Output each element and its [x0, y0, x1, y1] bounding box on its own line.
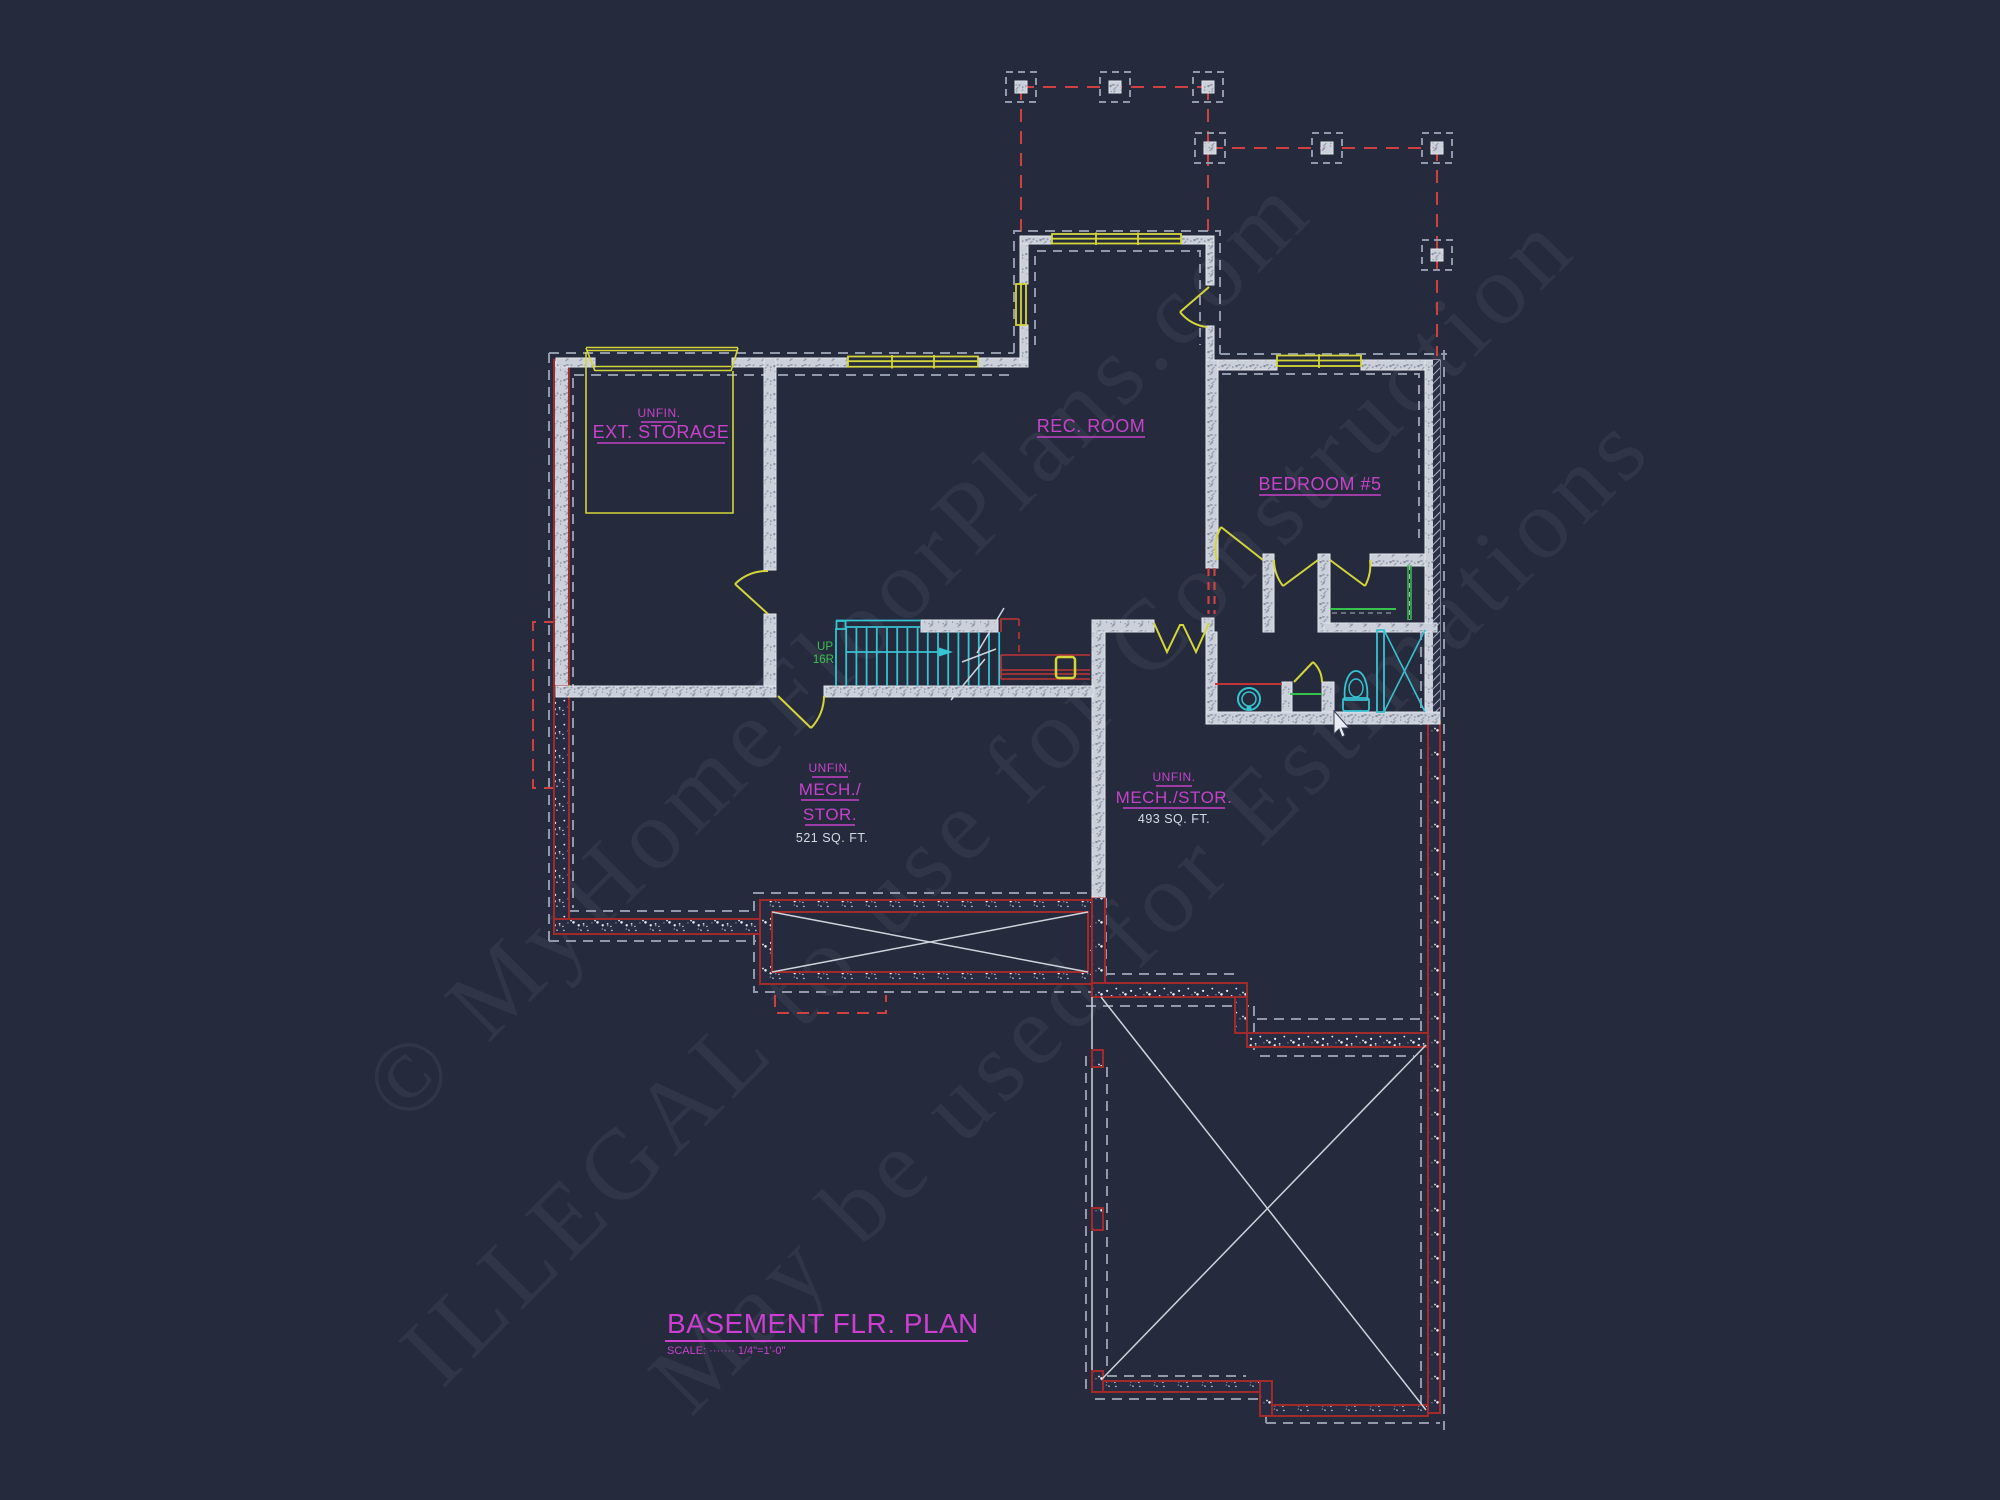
- svg-text:EXT. STORAGE: EXT. STORAGE: [593, 422, 730, 442]
- svg-text:BEDROOM #5: BEDROOM #5: [1258, 474, 1381, 494]
- svg-text:REC. ROOM: REC. ROOM: [1037, 416, 1146, 436]
- svg-text:UNFIN.: UNFIN.: [1153, 770, 1196, 784]
- svg-text:SCALE: ······· 1/4"=1'-0": SCALE: ······· 1/4"=1'-0": [667, 1345, 786, 1357]
- svg-text:MECH./: MECH./: [799, 780, 862, 799]
- svg-text:16R: 16R: [813, 654, 834, 666]
- svg-text:UNFIN.: UNFIN.: [638, 406, 681, 420]
- svg-text:493 SQ. FT.: 493 SQ. FT.: [1138, 812, 1210, 826]
- svg-text:STOR.: STOR.: [803, 805, 857, 824]
- svg-text:521 SQ. FT.: 521 SQ. FT.: [796, 831, 868, 845]
- svg-text:UP: UP: [817, 641, 833, 653]
- svg-text:MECH./STOR.: MECH./STOR.: [1116, 788, 1233, 807]
- svg-text:BASEMENT FLR. PLAN: BASEMENT FLR. PLAN: [667, 1308, 979, 1339]
- svg-text:UNFIN.: UNFIN.: [809, 761, 852, 775]
